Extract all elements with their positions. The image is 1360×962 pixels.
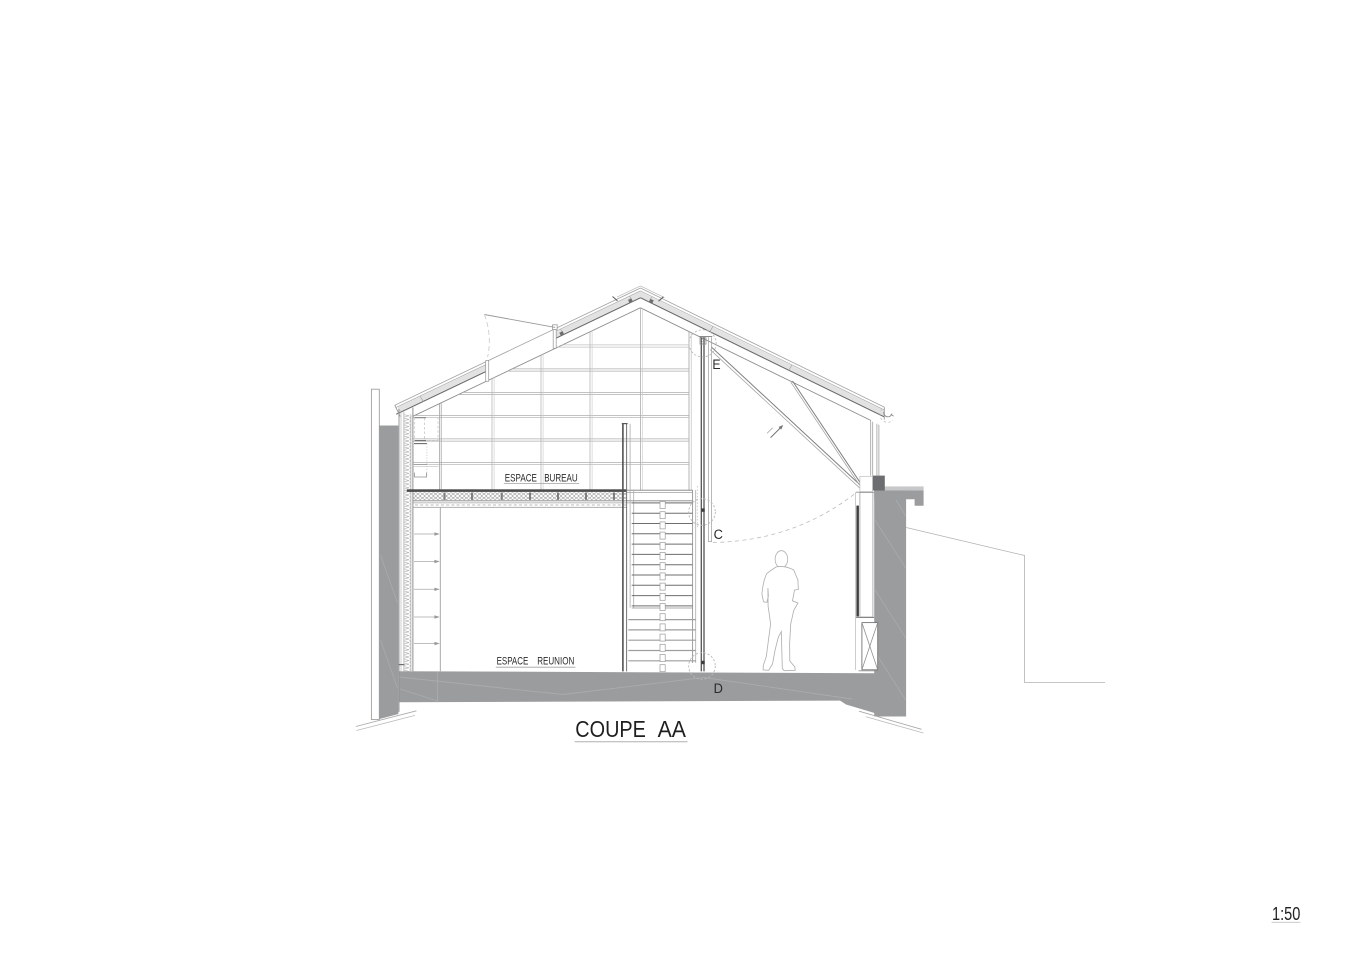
svg-text:E: E xyxy=(712,357,720,373)
svg-text:AA: AA xyxy=(658,716,687,742)
svg-text:BUREAU: BUREAU xyxy=(544,472,578,484)
svg-text:COUPE: COUPE xyxy=(575,716,646,742)
svg-text:D: D xyxy=(714,681,723,697)
svg-text:ESPACE: ESPACE xyxy=(505,472,537,484)
svg-text:C: C xyxy=(714,527,723,543)
svg-text:REUNION: REUNION xyxy=(537,656,574,668)
svg-text:1:50: 1:50 xyxy=(1272,903,1300,924)
svg-text:ESPACE: ESPACE xyxy=(497,656,529,668)
